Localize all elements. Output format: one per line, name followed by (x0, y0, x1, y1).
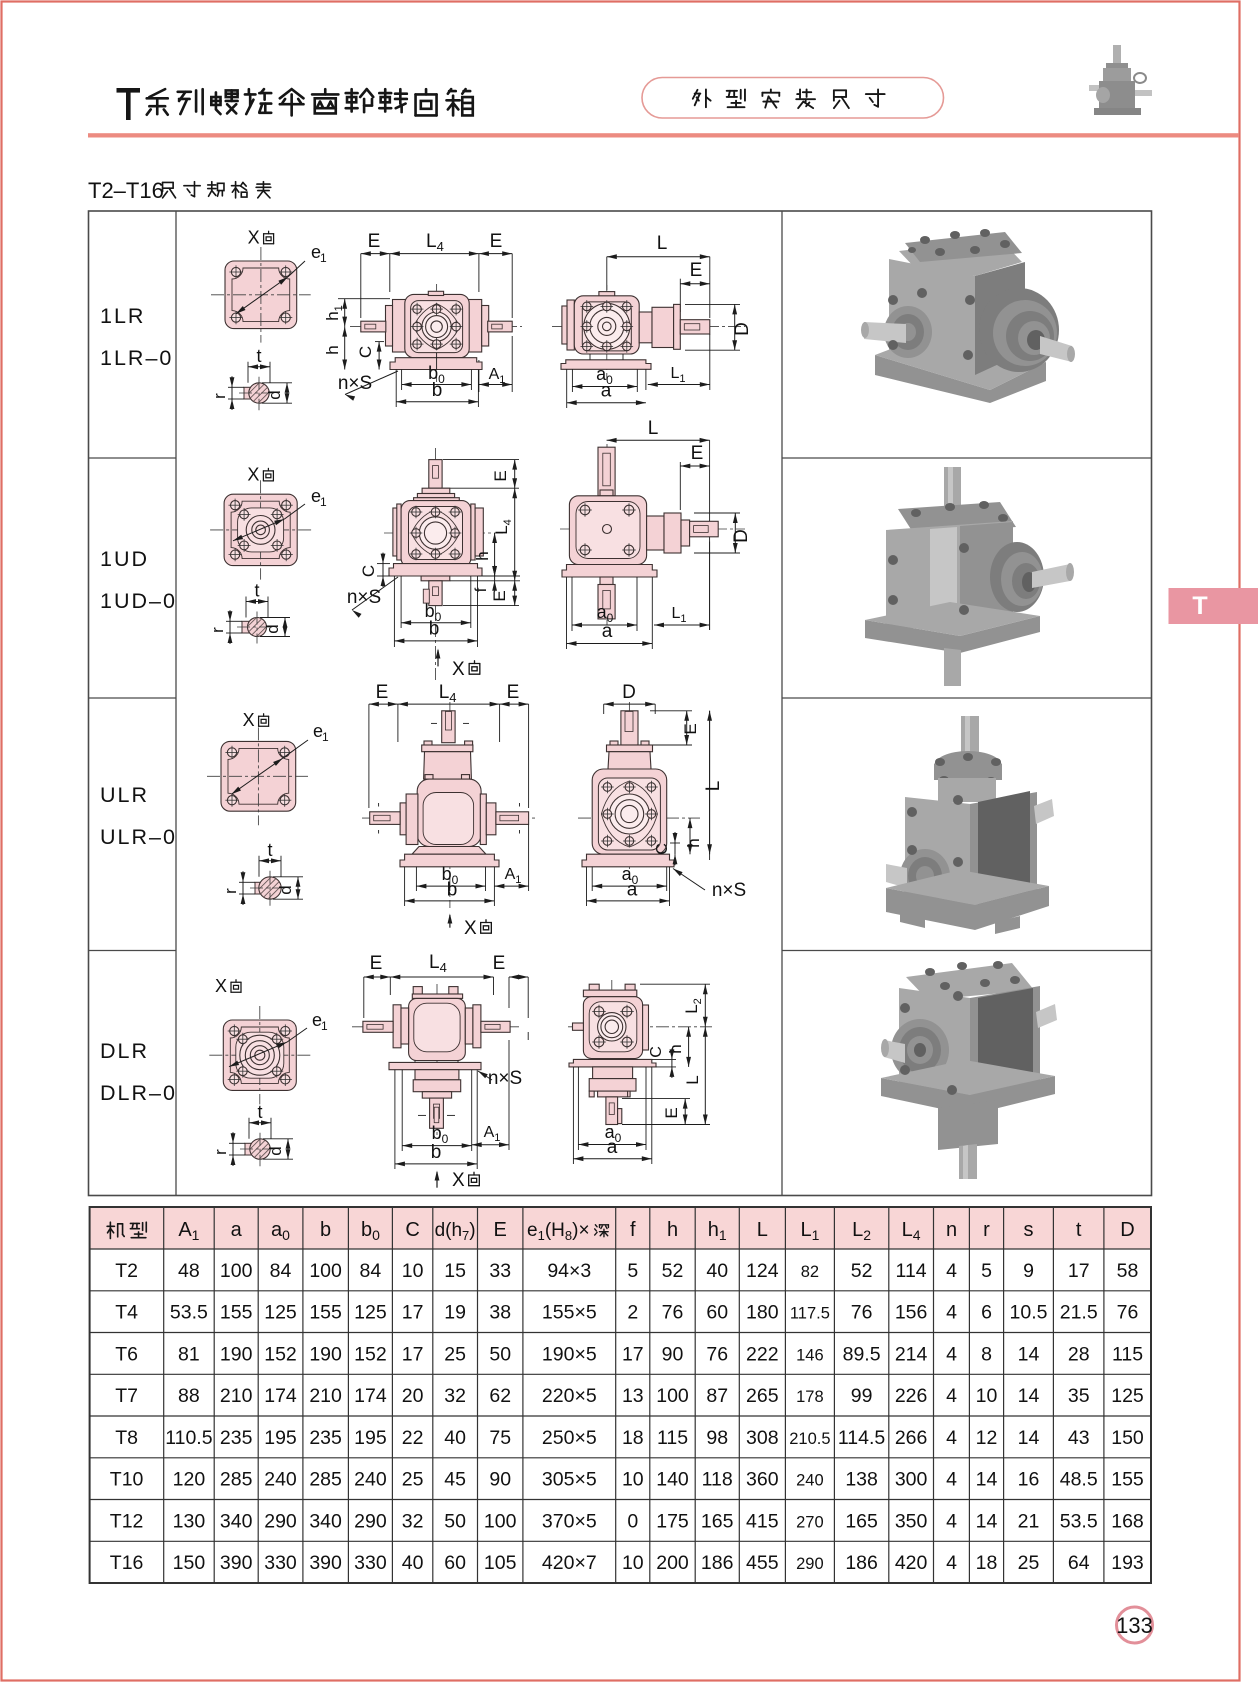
svg-text:1: 1 (320, 251, 327, 265)
svg-text:270: 270 (796, 1513, 824, 1531)
svg-text:21.5: 21.5 (1060, 1302, 1098, 1324)
svg-text:115: 115 (657, 1427, 688, 1449)
svg-text:d(h7): d(h7) (435, 1220, 476, 1243)
svg-text:114: 114 (896, 1260, 927, 1282)
svg-text:18: 18 (976, 1552, 998, 1574)
svg-text:C: C (654, 843, 671, 855)
svg-text:10: 10 (622, 1552, 644, 1574)
svg-text:14: 14 (1018, 1427, 1040, 1449)
svg-text:420: 420 (895, 1552, 928, 1574)
svg-text:4: 4 (946, 1302, 957, 1324)
svg-text:T6: T6 (115, 1343, 138, 1365)
svg-text:1LR: 1LR (100, 304, 145, 328)
svg-text:214: 214 (895, 1343, 928, 1365)
svg-text:10.5: 10.5 (1010, 1302, 1048, 1324)
svg-text:X: X (452, 659, 465, 680)
svg-text:e1(H8)×: e1(H8)× (527, 1220, 590, 1243)
svg-text:38: 38 (489, 1302, 511, 1324)
svg-text:117.5: 117.5 (790, 1305, 830, 1323)
svg-text:T2: T2 (115, 1260, 138, 1282)
svg-text:h: h (473, 551, 492, 560)
svg-text:290: 290 (354, 1510, 387, 1532)
svg-text:A1: A1 (489, 366, 506, 386)
svg-text:210.5: 210.5 (789, 1430, 830, 1448)
svg-text:25: 25 (402, 1469, 424, 1491)
svg-text:222: 222 (746, 1343, 779, 1365)
svg-text:226: 226 (895, 1385, 928, 1407)
svg-text:118: 118 (702, 1469, 733, 1491)
svg-text:X: X (215, 976, 227, 996)
svg-text:14: 14 (1018, 1343, 1040, 1365)
svg-text:100: 100 (220, 1260, 253, 1282)
svg-text:174: 174 (264, 1385, 297, 1407)
svg-text:152: 152 (264, 1343, 297, 1365)
svg-text:308: 308 (746, 1427, 779, 1449)
svg-text:84: 84 (270, 1260, 292, 1282)
svg-text:125: 125 (264, 1302, 297, 1324)
svg-text:E: E (662, 1107, 681, 1118)
svg-text:T2–T16: T2–T16 (88, 178, 164, 203)
svg-text:L: L (648, 418, 659, 439)
svg-text:C: C (356, 346, 375, 358)
svg-text:265: 265 (746, 1385, 779, 1407)
svg-text:b: b (447, 880, 458, 901)
svg-text:n×S: n×S (712, 880, 746, 901)
svg-text:28: 28 (1068, 1343, 1090, 1365)
svg-text:330: 330 (264, 1552, 297, 1574)
svg-text:152: 152 (354, 1343, 387, 1365)
svg-text:L2: L2 (682, 998, 704, 1014)
svg-text:t: t (267, 840, 272, 860)
svg-text:6: 6 (981, 1302, 992, 1324)
svg-text:T16: T16 (110, 1552, 144, 1574)
svg-text:10: 10 (976, 1385, 998, 1407)
svg-text:10: 10 (622, 1469, 644, 1491)
svg-text:330: 330 (354, 1552, 387, 1574)
svg-text:1UD: 1UD (100, 547, 149, 571)
svg-text:X: X (464, 918, 477, 939)
svg-text:98: 98 (706, 1427, 728, 1449)
svg-text:40: 40 (402, 1552, 424, 1574)
svg-text:16: 16 (1018, 1469, 1040, 1491)
svg-text:A1: A1 (505, 866, 522, 886)
svg-text:87: 87 (706, 1385, 728, 1407)
svg-text:r: r (208, 627, 227, 633)
svg-text:90: 90 (662, 1343, 684, 1365)
svg-text:174: 174 (354, 1385, 387, 1407)
svg-text:D: D (622, 682, 636, 703)
svg-text:120: 120 (173, 1469, 206, 1491)
svg-text:DLR–0: DLR–0 (100, 1081, 177, 1105)
svg-text:b: b (429, 619, 440, 640)
svg-text:150: 150 (173, 1552, 206, 1574)
svg-text:210: 210 (220, 1385, 253, 1407)
svg-text:12: 12 (976, 1427, 998, 1449)
svg-text:a: a (601, 381, 612, 402)
svg-text:125: 125 (1111, 1385, 1144, 1407)
svg-text:190: 190 (220, 1343, 253, 1365)
svg-text:360: 360 (746, 1469, 779, 1491)
svg-text:52: 52 (851, 1260, 873, 1282)
svg-text:20: 20 (402, 1385, 424, 1407)
svg-text:A1: A1 (484, 1124, 501, 1144)
svg-text:D: D (732, 322, 753, 336)
svg-text:L4: L4 (429, 952, 447, 975)
svg-text:b: b (431, 1142, 442, 1163)
svg-text:82: 82 (801, 1263, 819, 1281)
svg-text:50: 50 (444, 1510, 466, 1532)
svg-text:h: h (684, 838, 703, 847)
svg-text:r: r (211, 1149, 230, 1155)
svg-text:455: 455 (746, 1552, 779, 1574)
svg-text:C: C (359, 565, 378, 577)
svg-text:76: 76 (706, 1343, 728, 1365)
svg-text:D: D (1120, 1219, 1134, 1241)
svg-text:18: 18 (622, 1427, 644, 1449)
svg-text:285: 285 (220, 1469, 253, 1491)
svg-text:X: X (248, 228, 260, 248)
svg-text:210: 210 (309, 1385, 342, 1407)
svg-text:89.5: 89.5 (843, 1343, 881, 1365)
svg-text:48: 48 (178, 1260, 200, 1282)
svg-text:ULR–0: ULR–0 (100, 825, 177, 849)
svg-text:64: 64 (1068, 1552, 1090, 1574)
svg-text:E: E (491, 470, 510, 481)
svg-text:155: 155 (1111, 1469, 1144, 1491)
svg-text:350: 350 (895, 1510, 928, 1532)
svg-text:T8: T8 (115, 1427, 138, 1449)
svg-text:90: 90 (489, 1469, 511, 1491)
svg-text:100: 100 (656, 1385, 689, 1407)
svg-text:370×5: 370×5 (542, 1510, 597, 1532)
svg-text:285: 285 (309, 1469, 342, 1491)
svg-text:52: 52 (662, 1260, 684, 1282)
svg-text:L: L (757, 1219, 768, 1241)
svg-text:r: r (210, 393, 229, 399)
svg-text:290: 290 (264, 1510, 297, 1532)
svg-text:L: L (657, 233, 668, 254)
svg-text:4: 4 (946, 1427, 957, 1449)
svg-text:L: L (703, 781, 724, 792)
svg-text:76: 76 (662, 1302, 684, 1324)
svg-text:T12: T12 (110, 1510, 144, 1532)
svg-text:T: T (1192, 592, 1207, 620)
svg-text:40: 40 (706, 1260, 728, 1282)
svg-text:195: 195 (264, 1427, 297, 1449)
svg-text:140: 140 (656, 1469, 689, 1491)
svg-text:t: t (254, 581, 259, 601)
svg-text:22: 22 (402, 1427, 424, 1449)
svg-text:r: r (983, 1219, 990, 1241)
svg-text:25: 25 (1018, 1552, 1040, 1574)
svg-text:60: 60 (444, 1552, 466, 1574)
svg-text:76: 76 (1117, 1302, 1139, 1324)
svg-text:175: 175 (656, 1510, 689, 1532)
svg-text:420×7: 420×7 (542, 1552, 597, 1574)
svg-text:15: 15 (444, 1260, 466, 1282)
svg-text:125: 125 (354, 1302, 387, 1324)
svg-text:58: 58 (1117, 1260, 1139, 1282)
svg-text:53.5: 53.5 (170, 1302, 208, 1324)
svg-text:195: 195 (354, 1427, 387, 1449)
svg-text:X: X (243, 710, 255, 730)
svg-text:290: 290 (796, 1555, 824, 1573)
svg-text:d: d (265, 390, 284, 399)
svg-text:X: X (247, 465, 259, 485)
svg-text:L4: L4 (492, 519, 514, 535)
svg-text:190: 190 (309, 1343, 342, 1365)
svg-text:266: 266 (895, 1427, 928, 1449)
svg-text:5: 5 (981, 1260, 992, 1282)
svg-text:84: 84 (360, 1260, 382, 1282)
svg-text:235: 235 (309, 1427, 342, 1449)
svg-text:124: 124 (746, 1260, 779, 1282)
svg-text:9: 9 (1023, 1260, 1034, 1282)
svg-text:32: 32 (444, 1385, 466, 1407)
svg-text:62: 62 (489, 1385, 511, 1407)
svg-text:L4: L4 (439, 682, 457, 705)
svg-text:340: 340 (309, 1510, 342, 1532)
svg-text:180: 180 (746, 1302, 779, 1324)
svg-text:X: X (452, 1170, 465, 1191)
svg-text:25: 25 (444, 1343, 466, 1365)
svg-text:n: n (946, 1219, 957, 1241)
svg-text:a: a (627, 880, 638, 901)
svg-text:10: 10 (402, 1260, 424, 1282)
svg-text:L1: L1 (671, 605, 686, 625)
svg-text:D: D (731, 529, 752, 543)
svg-text:115: 115 (1112, 1343, 1143, 1365)
svg-text:4: 4 (946, 1552, 957, 1574)
svg-text:b: b (320, 1219, 331, 1241)
svg-text:105: 105 (484, 1552, 517, 1574)
svg-text:35: 35 (1068, 1385, 1090, 1407)
svg-text:ULR: ULR (100, 783, 149, 807)
svg-text:T10: T10 (110, 1469, 144, 1491)
svg-text:4: 4 (946, 1469, 957, 1491)
svg-text:2: 2 (627, 1302, 638, 1324)
svg-text:E: E (691, 443, 704, 464)
svg-text:53.5: 53.5 (1060, 1510, 1098, 1532)
svg-text:4: 4 (946, 1385, 957, 1407)
svg-text:390: 390 (220, 1552, 253, 1574)
svg-text:d: d (263, 624, 282, 633)
svg-text:T4: T4 (115, 1302, 138, 1324)
svg-text:8: 8 (981, 1343, 992, 1365)
svg-text:1LR–0: 1LR–0 (100, 346, 173, 370)
svg-text:99: 99 (851, 1385, 873, 1407)
svg-text:h: h (323, 345, 342, 354)
svg-text:114.5: 114.5 (838, 1427, 886, 1449)
svg-text:130: 130 (173, 1510, 206, 1532)
svg-text:21: 21 (1018, 1510, 1040, 1532)
svg-text:E: E (681, 723, 700, 734)
svg-text:4: 4 (946, 1260, 957, 1282)
svg-text:DLR: DLR (100, 1039, 149, 1063)
svg-text:a: a (607, 1137, 618, 1158)
svg-text:156: 156 (895, 1302, 928, 1324)
svg-text:14: 14 (976, 1510, 998, 1532)
svg-text:165: 165 (701, 1510, 734, 1532)
svg-text:13: 13 (622, 1385, 644, 1407)
svg-text:81: 81 (178, 1343, 200, 1365)
svg-text:d: d (276, 885, 295, 894)
svg-text:a: a (602, 621, 613, 642)
svg-text:C: C (405, 1219, 419, 1241)
svg-text:E: E (690, 260, 703, 281)
svg-text:b: b (432, 380, 443, 401)
svg-text:h1: h1 (323, 305, 345, 321)
svg-text:1: 1 (322, 730, 329, 744)
svg-text:n×S: n×S (347, 587, 381, 608)
svg-text:240: 240 (354, 1469, 387, 1491)
svg-text:100: 100 (484, 1510, 517, 1532)
svg-text:146: 146 (796, 1346, 824, 1364)
svg-text:32: 32 (402, 1510, 424, 1532)
svg-text:390: 390 (309, 1552, 342, 1574)
svg-text:E: E (493, 953, 506, 974)
svg-text:94×3: 94×3 (547, 1260, 591, 1282)
svg-text:50: 50 (489, 1343, 511, 1365)
svg-text:L4: L4 (426, 231, 444, 254)
svg-text:14: 14 (1018, 1385, 1040, 1407)
svg-text:340: 340 (220, 1510, 253, 1532)
svg-text:h: h (667, 1219, 678, 1241)
svg-text:186: 186 (701, 1552, 734, 1574)
svg-text:4: 4 (946, 1343, 957, 1365)
svg-text:C: C (648, 1046, 665, 1058)
svg-text:L: L (683, 1075, 702, 1084)
svg-text:d: d (266, 1146, 285, 1155)
svg-text:75: 75 (489, 1427, 511, 1449)
svg-text:110.5: 110.5 (165, 1427, 213, 1449)
svg-text:45: 45 (444, 1469, 466, 1491)
svg-text:250×5: 250×5 (542, 1427, 597, 1449)
svg-text:193: 193 (1111, 1552, 1144, 1574)
svg-text:4: 4 (946, 1510, 957, 1532)
svg-text:168: 168 (1111, 1510, 1144, 1532)
svg-text:300: 300 (895, 1469, 928, 1491)
svg-text:17: 17 (1068, 1260, 1090, 1282)
svg-text:1: 1 (320, 495, 327, 509)
svg-text:235: 235 (220, 1427, 253, 1449)
svg-text:138: 138 (845, 1469, 878, 1491)
svg-text:E: E (376, 682, 389, 703)
svg-text:L1: L1 (670, 365, 685, 385)
svg-text:T7: T7 (115, 1385, 138, 1407)
svg-text:415: 415 (746, 1510, 779, 1532)
svg-text:76: 76 (851, 1302, 873, 1324)
svg-text:17: 17 (402, 1343, 424, 1365)
svg-text:186: 186 (845, 1552, 878, 1574)
svg-text:200: 200 (656, 1552, 689, 1574)
svg-text:f: f (630, 1219, 636, 1241)
svg-text:f: f (473, 587, 490, 592)
svg-text:t: t (256, 346, 261, 366)
svg-text:t: t (1076, 1219, 1082, 1241)
svg-text:190×5: 190×5 (542, 1343, 597, 1365)
svg-text:r: r (221, 888, 240, 894)
svg-text:1UD–0: 1UD–0 (100, 589, 177, 613)
svg-text:240: 240 (264, 1469, 297, 1491)
svg-text:150: 150 (1111, 1427, 1144, 1449)
svg-text:48.5: 48.5 (1060, 1469, 1098, 1491)
svg-text:17: 17 (402, 1302, 424, 1324)
svg-text:88: 88 (178, 1385, 200, 1407)
svg-text:n×S: n×S (338, 373, 372, 394)
svg-text:220×5: 220×5 (542, 1385, 597, 1407)
svg-text:100: 100 (309, 1260, 342, 1282)
svg-text:155: 155 (220, 1302, 253, 1324)
svg-text:43: 43 (1068, 1427, 1090, 1449)
svg-text:40: 40 (444, 1427, 466, 1449)
svg-text:1: 1 (321, 1019, 328, 1033)
svg-text:0: 0 (627, 1510, 638, 1532)
svg-text:n×S: n×S (488, 1068, 522, 1089)
svg-text:t: t (257, 1102, 262, 1122)
svg-text:305×5: 305×5 (542, 1469, 597, 1491)
svg-text:155×5: 155×5 (542, 1302, 597, 1324)
svg-text:155: 155 (309, 1302, 342, 1324)
svg-text:h: h (666, 1044, 685, 1053)
svg-text:5: 5 (627, 1260, 638, 1282)
svg-text:E: E (507, 682, 520, 703)
svg-text:165: 165 (845, 1510, 878, 1532)
svg-text:133: 133 (1116, 1613, 1153, 1638)
svg-text:33: 33 (489, 1260, 511, 1282)
svg-text:E: E (490, 231, 503, 252)
svg-text:60: 60 (706, 1302, 728, 1324)
svg-text:17: 17 (622, 1343, 644, 1365)
svg-text:14: 14 (976, 1469, 998, 1491)
svg-text:240: 240 (796, 1472, 824, 1490)
svg-text:19: 19 (444, 1302, 466, 1324)
svg-text:s: s (1024, 1219, 1034, 1241)
svg-text:E: E (368, 231, 381, 252)
svg-text:E: E (370, 953, 383, 974)
svg-text:E: E (490, 590, 509, 601)
svg-text:178: 178 (796, 1388, 824, 1406)
svg-text:E: E (494, 1219, 507, 1241)
svg-text:a: a (231, 1219, 243, 1241)
